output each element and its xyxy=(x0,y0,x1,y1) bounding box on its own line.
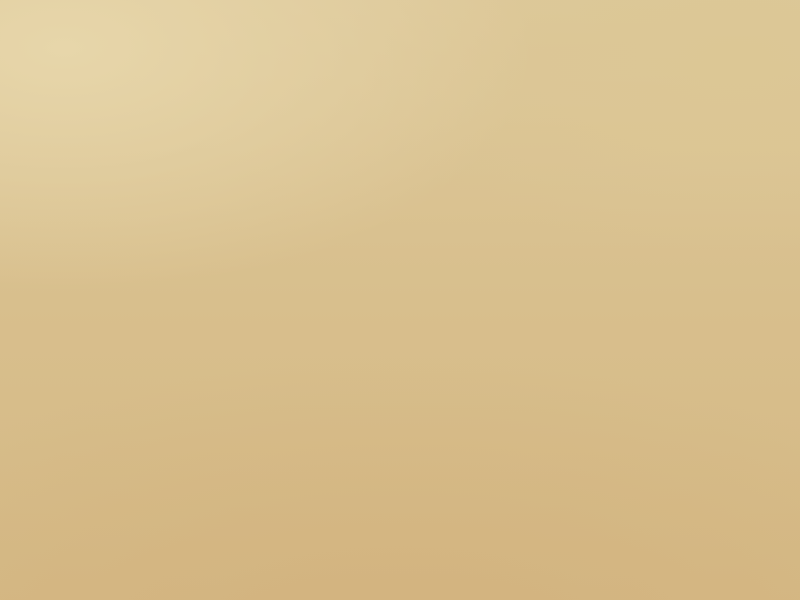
masterplan-aerial-map xyxy=(0,0,800,600)
